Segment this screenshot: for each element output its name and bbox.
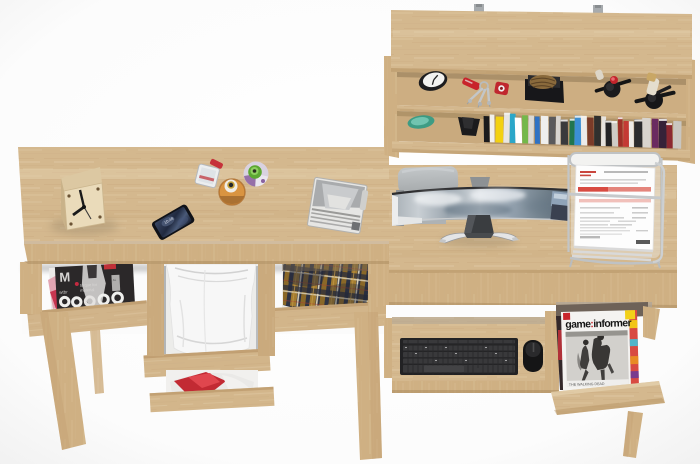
svg-text:M: M: [59, 269, 71, 285]
svg-text:material: material: [80, 287, 95, 293]
svg-text:game:informer: game:informer: [565, 317, 632, 331]
svg-text:AL: AL: [113, 278, 117, 282]
svg-text:wtbr: wtbr: [59, 289, 68, 294]
